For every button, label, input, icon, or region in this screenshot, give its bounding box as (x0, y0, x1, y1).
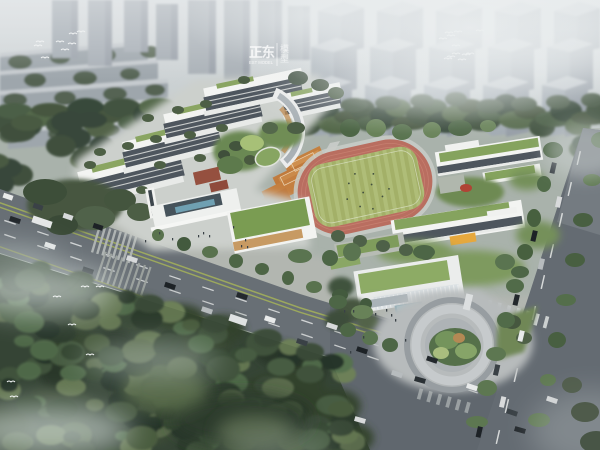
svg-text:型: 型 (280, 54, 289, 64)
svg-text:EST MODEL: EST MODEL (249, 60, 274, 65)
svg-text:模: 模 (280, 44, 289, 54)
svg-text:正东: 正东 (249, 44, 275, 60)
